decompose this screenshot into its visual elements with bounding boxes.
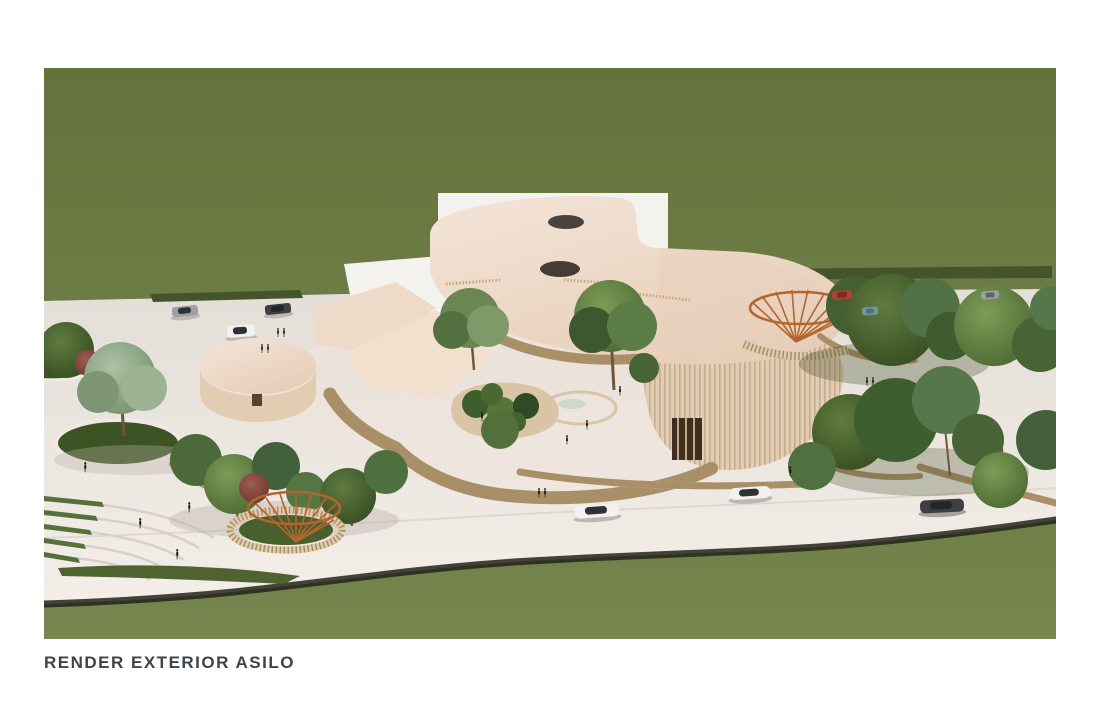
parked-car-red (832, 290, 853, 300)
render-svg (44, 68, 1056, 639)
red-tree (239, 473, 269, 503)
page: RENDER EXTERIOR ASILO (0, 0, 1100, 709)
left-rotunda (200, 338, 316, 422)
parked-car-gray (981, 290, 1000, 299)
figure-caption: RENDER EXTERIOR ASILO (44, 653, 295, 673)
oval-skylight-lower (540, 261, 580, 277)
render-image (44, 68, 1056, 639)
oval-skylight-upper (548, 215, 584, 229)
parked-car-teal (862, 306, 879, 315)
